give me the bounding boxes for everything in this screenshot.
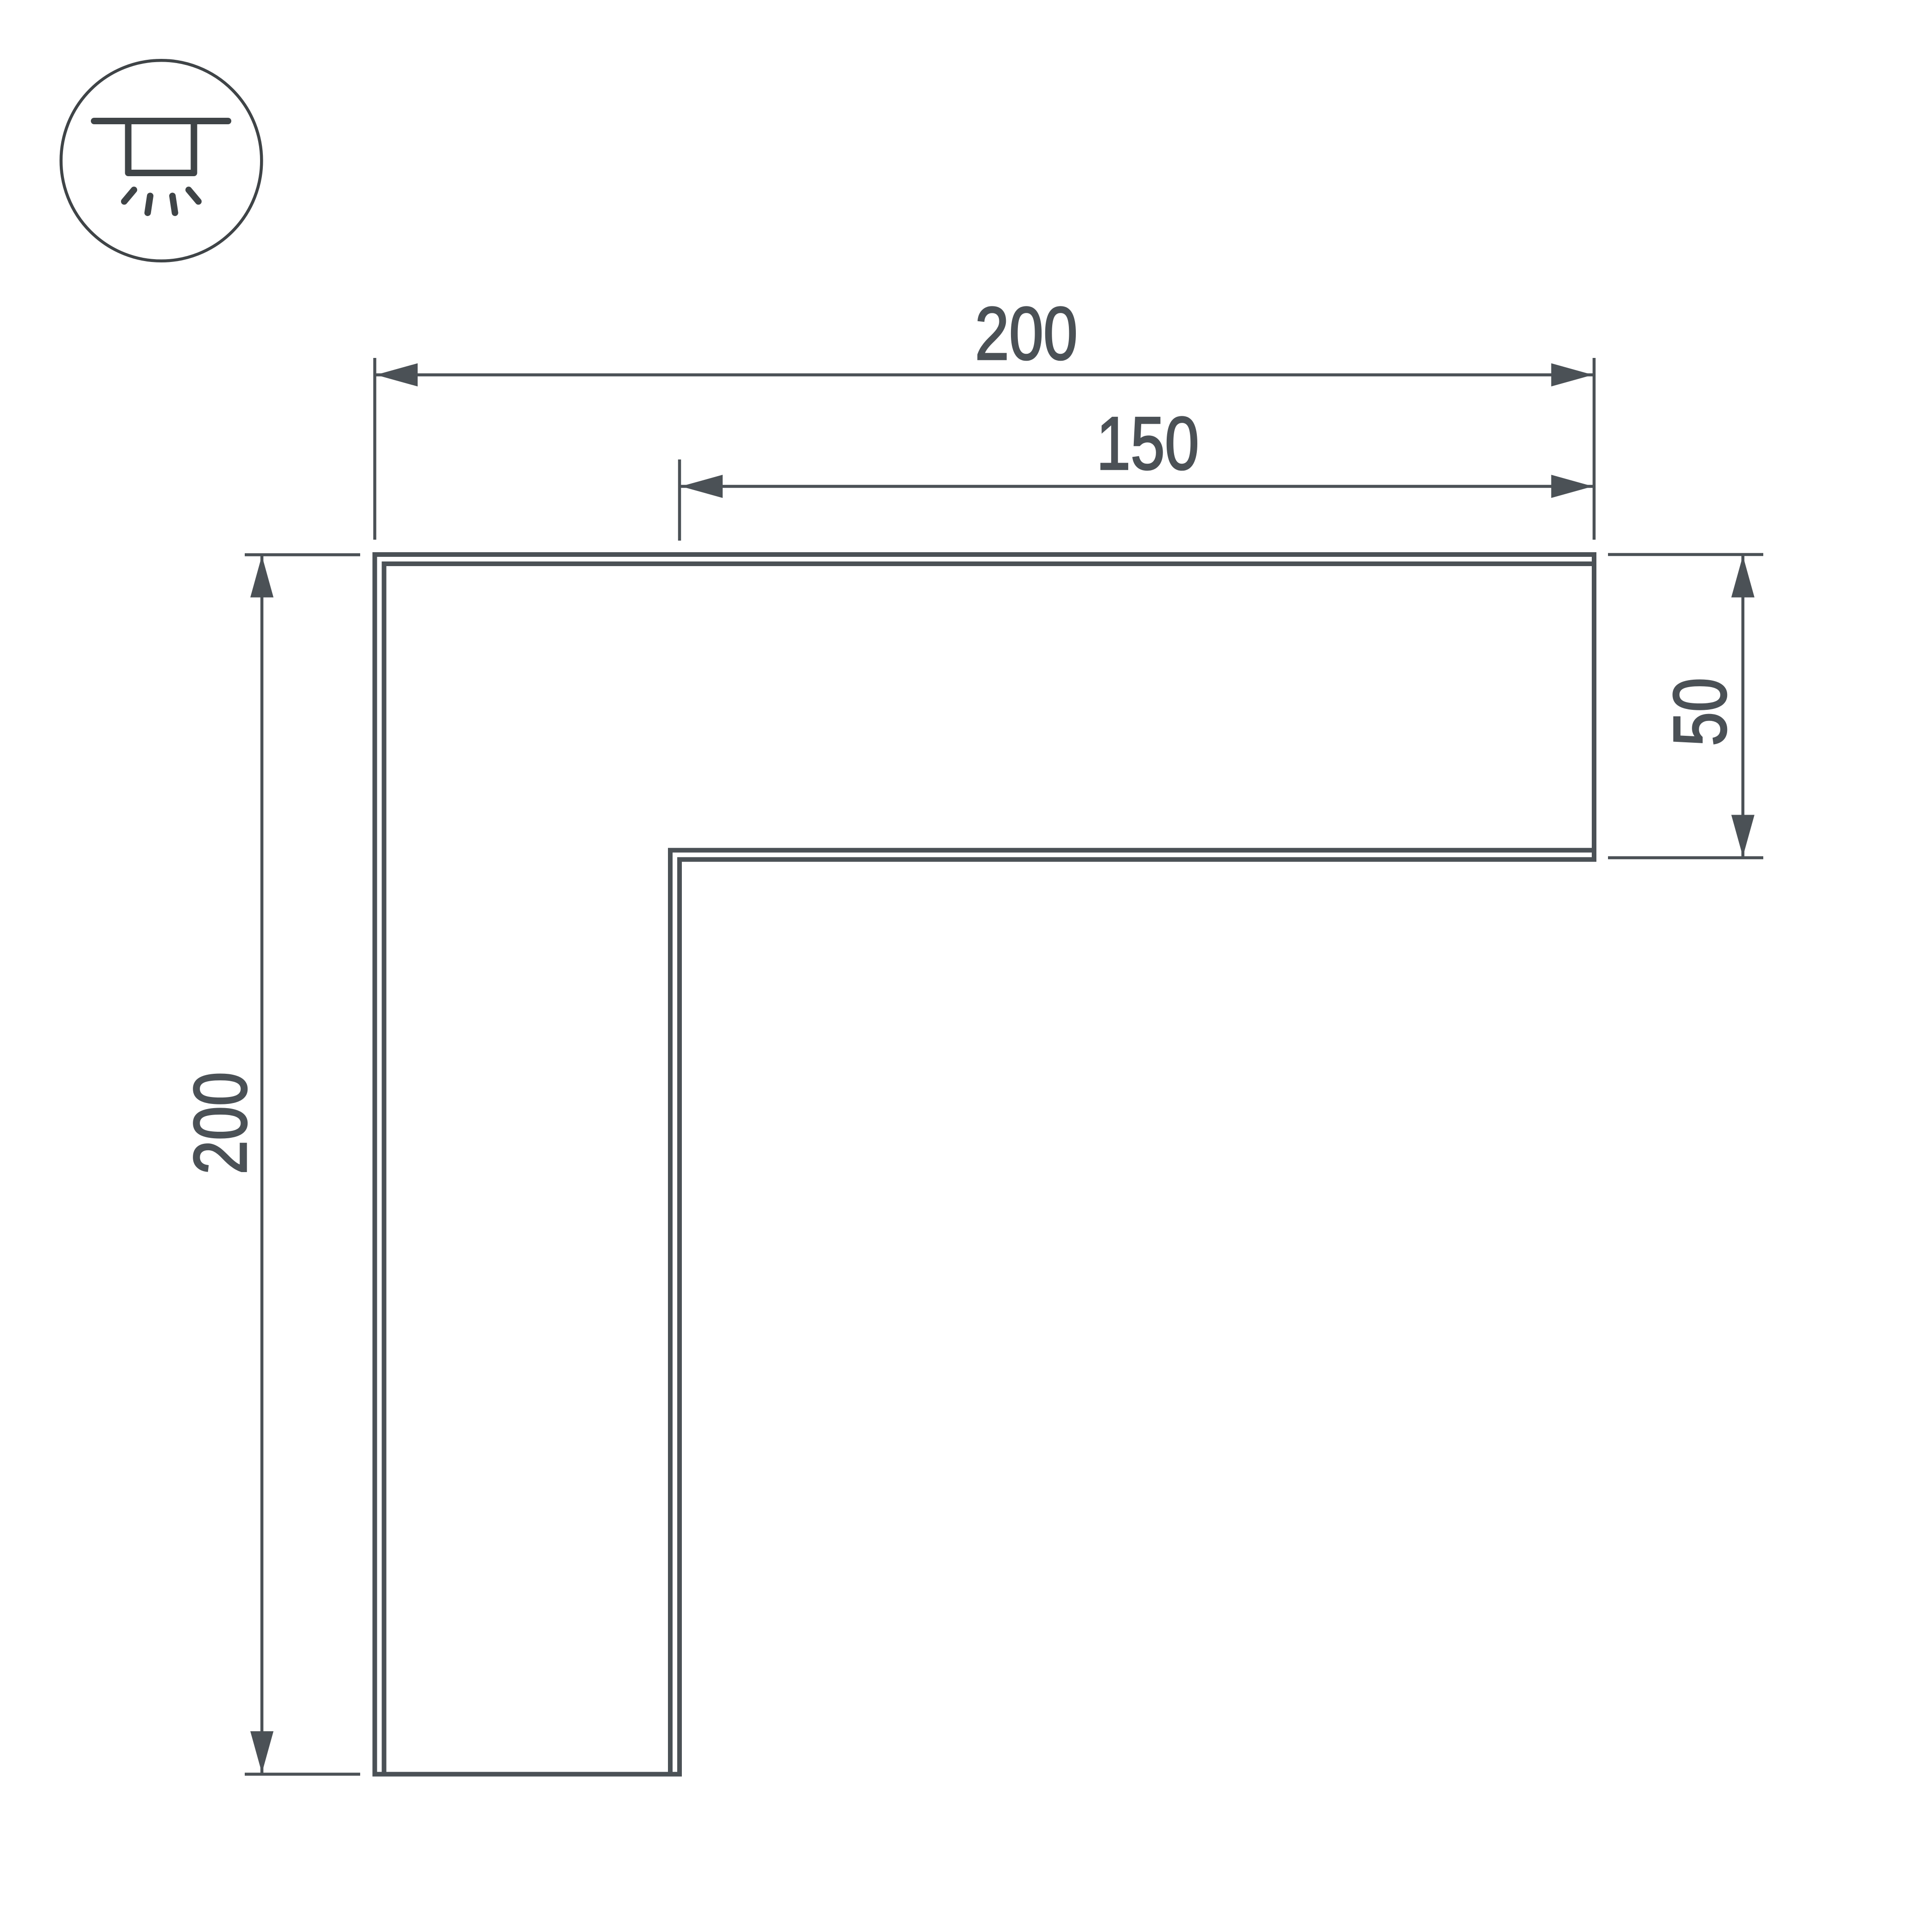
svg-text:50: 50 xyxy=(1659,678,1742,746)
svg-text:200: 200 xyxy=(179,1072,262,1175)
svg-text:150: 150 xyxy=(1096,402,1199,485)
svg-text:200: 200 xyxy=(975,292,1078,376)
